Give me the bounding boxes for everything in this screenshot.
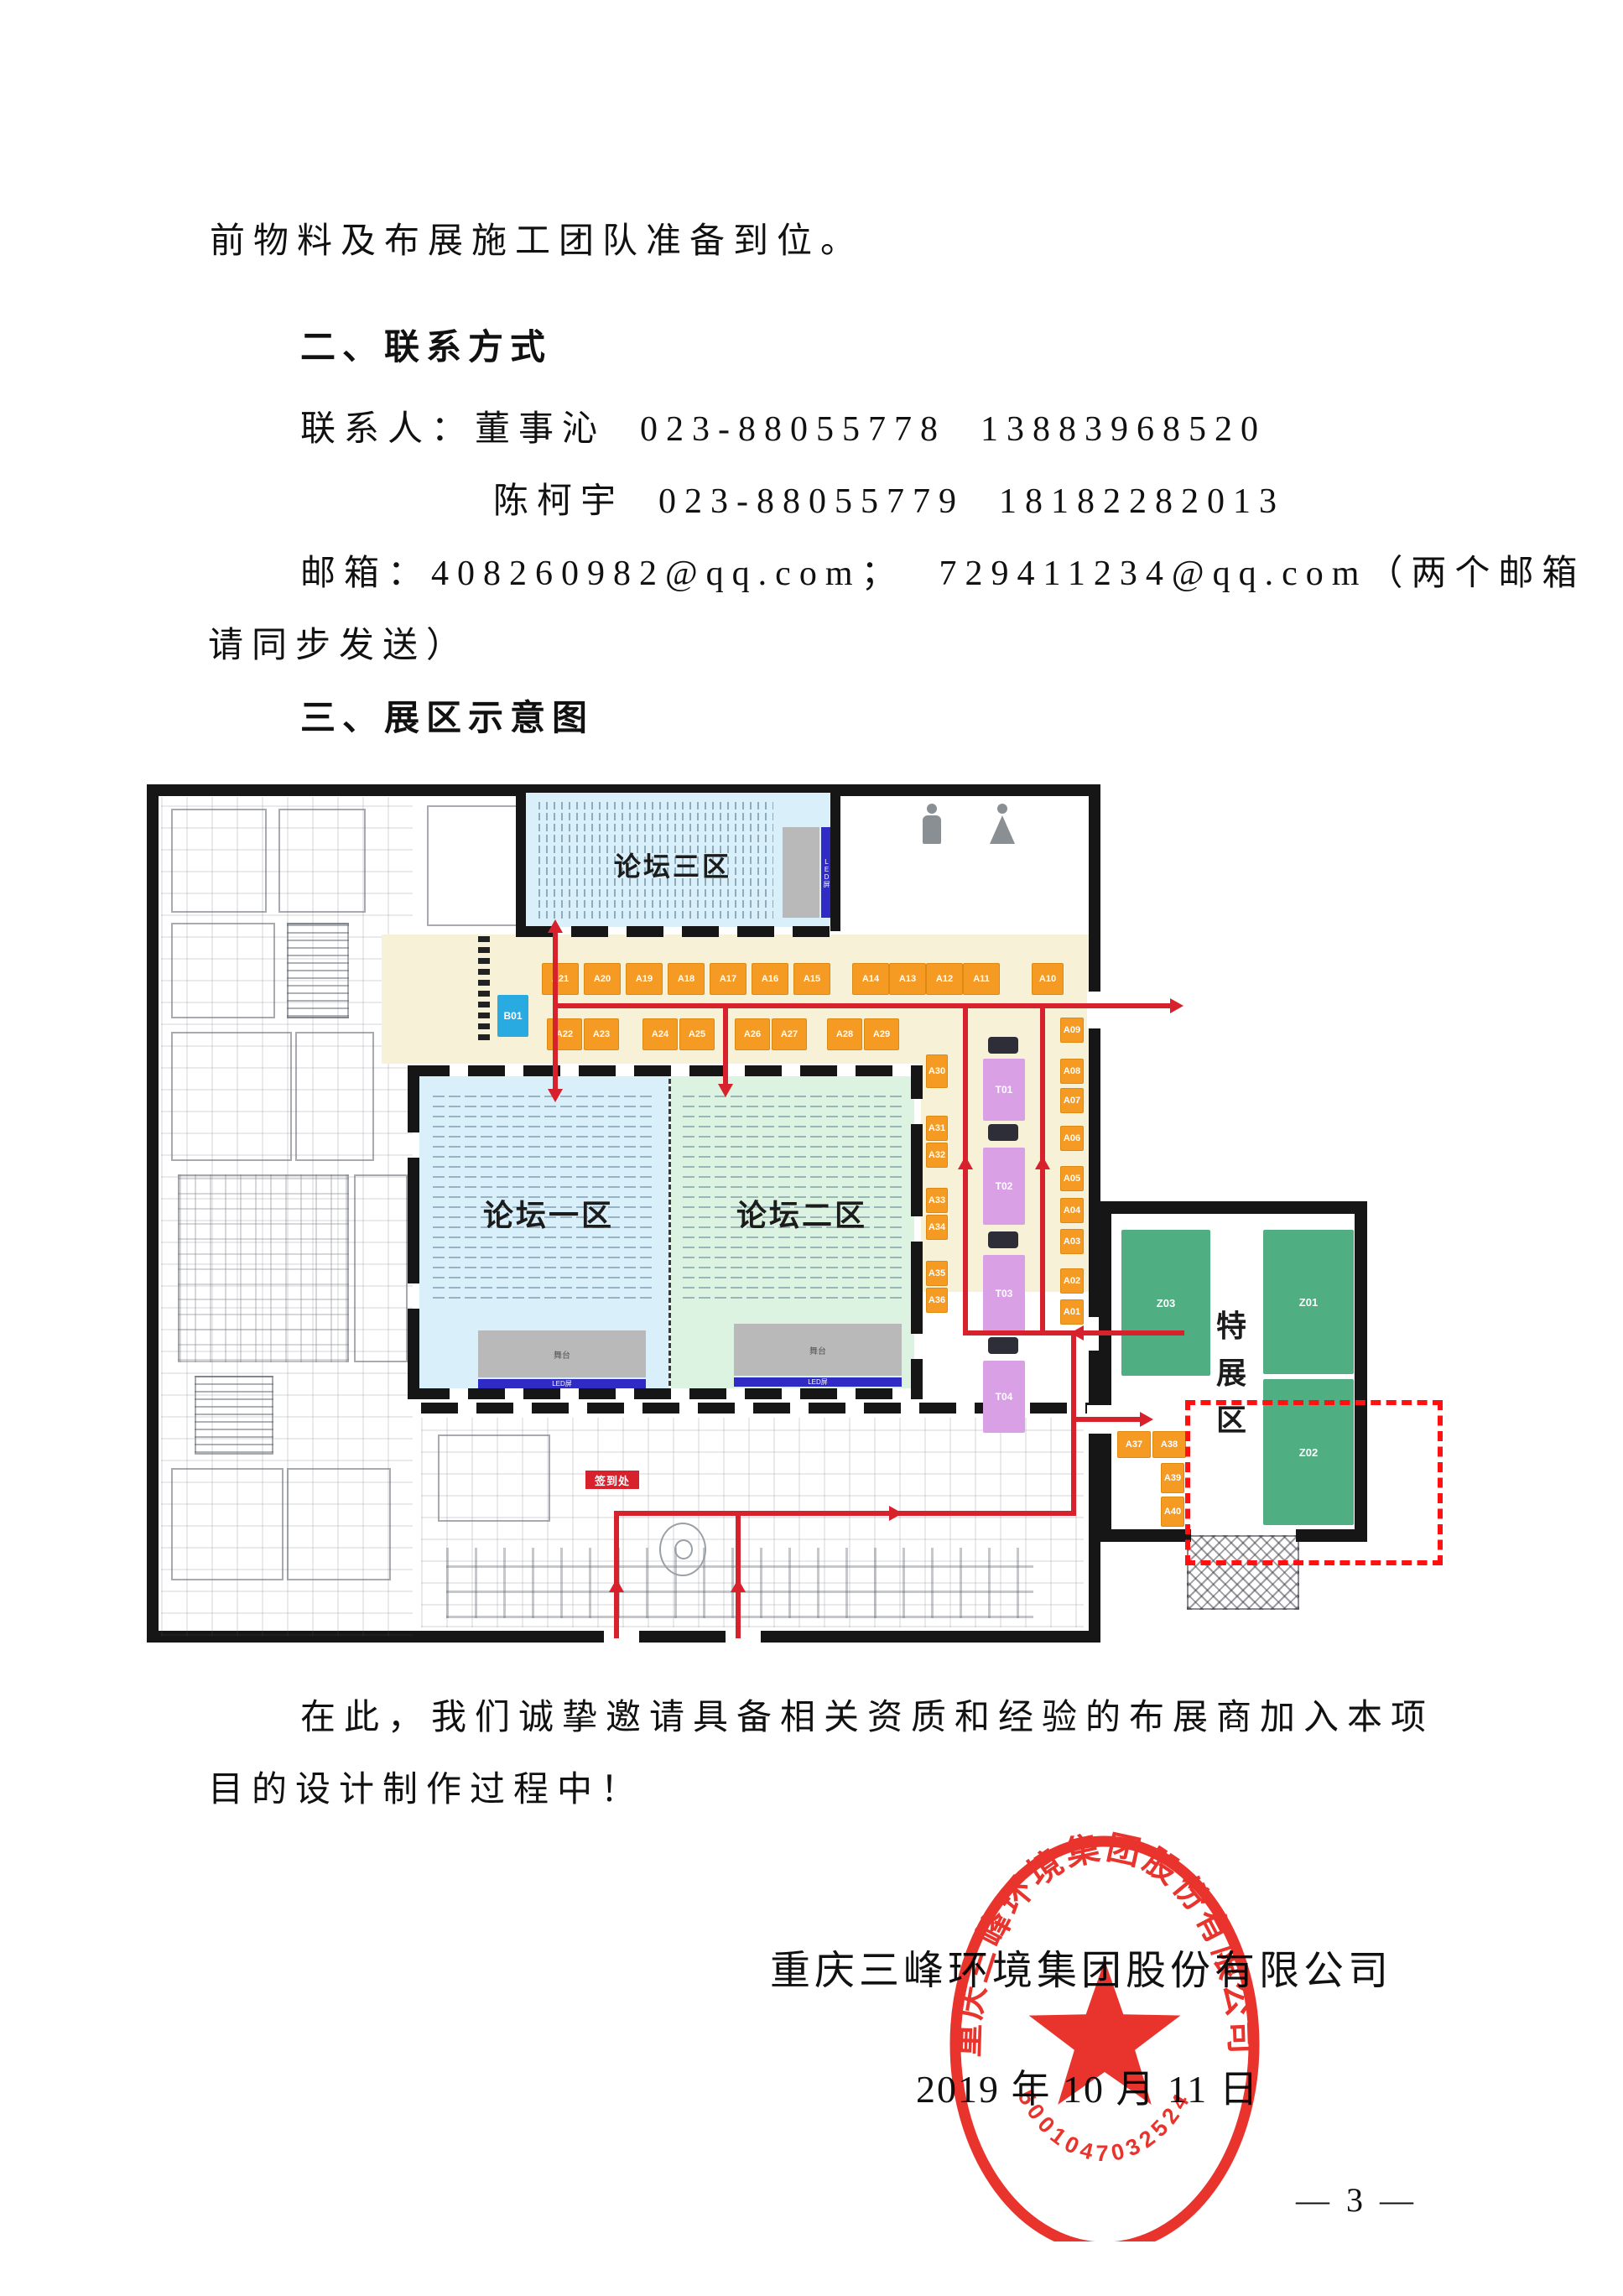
forum-divider <box>668 1079 671 1386</box>
route-arrow-right <box>1170 998 1183 1013</box>
booth-A25: A25 <box>679 1018 715 1050</box>
booth-A30: A30 <box>926 1054 948 1088</box>
booth-A06: A06 <box>1060 1126 1084 1151</box>
booth-A09: A09 <box>1060 1018 1084 1043</box>
route-arrow-up <box>1035 1156 1050 1169</box>
contact-line-2: 陈柯宇 023-88055779 18182282013 <box>493 480 1285 524</box>
booth-A24: A24 <box>642 1018 678 1050</box>
room-outline <box>287 1468 391 1580</box>
booth-A17: A17 <box>710 963 746 995</box>
booth-A03: A03 <box>1060 1229 1084 1254</box>
route-arrow-right <box>1140 1412 1153 1427</box>
booth-A29: A29 <box>864 1018 899 1050</box>
forum-zone1-stage: 舞台 <box>478 1330 646 1377</box>
wall <box>830 787 840 931</box>
booth-A14: A14 <box>852 963 889 995</box>
booth-T02: T02 <box>983 1148 1025 1225</box>
heading-map: 三、展区示意图 <box>300 696 594 741</box>
annex-wall-left <box>1099 1434 1111 1542</box>
booth-A37: A37 <box>1117 1431 1151 1458</box>
booth-A36: A36 <box>926 1288 948 1313</box>
forum-zone1-led: LED屏 <box>478 1379 646 1388</box>
booth-T03: T03 <box>983 1255 1025 1332</box>
booth-A31: A31 <box>926 1116 948 1141</box>
booth-A10: A10 <box>1032 963 1064 995</box>
room-outline <box>171 923 275 1018</box>
booth-A07: A07 <box>1060 1088 1084 1113</box>
paragraph-top: 前物料及布展施工团队准备到位。 <box>210 220 864 264</box>
booth-T04: T04 <box>983 1361 1025 1433</box>
booth-A20: A20 <box>584 963 621 995</box>
wall-doors <box>413 1388 923 1399</box>
company-seal: 重庆三峰环境集团股份有限公司 5001047032524 <box>941 1797 1268 2241</box>
booth-T01: T01 <box>983 1059 1025 1121</box>
booth-A28: A28 <box>827 1018 862 1050</box>
highlight-dashed-rect <box>1185 1400 1443 1565</box>
wall <box>911 1065 923 1099</box>
room-outline <box>171 809 267 913</box>
stairs <box>287 923 349 1018</box>
seal-svg: 重庆三峰环境集团股份有限公司 5001047032524 <box>941 1797 1268 2241</box>
room-outline <box>278 809 366 913</box>
forum-zone2-led: LED屏 <box>734 1377 902 1387</box>
booth-A12: A12 <box>926 963 963 995</box>
female-restroom-icon <box>990 804 1015 844</box>
booth-Z01: Z01 <box>1263 1230 1354 1374</box>
entrance-door <box>726 1629 761 1644</box>
checkin-tag: 签到处 <box>585 1471 639 1489</box>
booth-A16: A16 <box>752 963 788 995</box>
room-outline <box>354 1174 408 1362</box>
sculpture-inner <box>674 1539 693 1559</box>
registration-strip <box>478 936 490 1044</box>
route-line <box>1040 1007 1045 1335</box>
annex-wall-left <box>1099 1201 1111 1405</box>
contact-line-1: 联系人：董事沁 023-88055778 13883968520 <box>300 408 1267 452</box>
wall-doors <box>516 926 840 937</box>
wall <box>408 1309 419 1399</box>
booth-A33: A33 <box>926 1188 948 1213</box>
exhibition-floor-plan: 论坛三区 LED屏 论坛一区 论坛二区 舞台 LED屏 舞台 LED屏 <box>144 780 1443 1657</box>
svg-text:5001047032524: 5001047032524 <box>1013 2085 1197 2166</box>
wall-doors <box>413 1065 923 1076</box>
route-arrow-right <box>889 1506 903 1521</box>
document-page: 前物料及布展施工团队准备到位。 二、联系方式 联系人：董事沁 023-88055… <box>0 0 1623 2296</box>
booth-A23: A23 <box>584 1018 619 1050</box>
room-outline <box>171 1468 284 1580</box>
booth-A39: A39 <box>1161 1463 1184 1493</box>
forum-zone2-stage: 舞台 <box>734 1324 902 1376</box>
booth-Z03: Z03 <box>1121 1230 1210 1376</box>
booth-A26: A26 <box>735 1018 770 1050</box>
route-arrow-up <box>958 1156 973 1169</box>
wall <box>911 1124 923 1216</box>
booth-A34: A34 <box>926 1215 948 1240</box>
male-restroom-icon <box>923 804 941 844</box>
booth-A27: A27 <box>772 1018 807 1050</box>
booth-A21: A21 <box>542 963 579 995</box>
route-arrow-up <box>609 1579 624 1592</box>
table-icon <box>988 1231 1018 1248</box>
booth-A19: A19 <box>626 963 663 995</box>
booth-A13: A13 <box>889 963 926 995</box>
booth-A05: A05 <box>1060 1166 1084 1191</box>
route-line <box>614 1511 619 1638</box>
stairs <box>195 1376 273 1455</box>
booth-A32: A32 <box>926 1143 948 1168</box>
booth-A40: A40 <box>1161 1497 1184 1527</box>
route-arrow-up <box>731 1579 746 1592</box>
heading-contact: 二、联系方式 <box>300 325 552 370</box>
forum-zone3-stage <box>783 827 819 918</box>
seal-number: 5001047032524 <box>1013 2085 1197 2166</box>
room-outline <box>427 805 519 926</box>
route-line <box>736 1511 741 1638</box>
booth-A08: A08 <box>1060 1059 1084 1084</box>
annex-wall-top <box>1099 1201 1367 1214</box>
route-arrow-down <box>718 1084 733 1097</box>
email-line-2: 请同步发送） <box>208 624 470 669</box>
route-line <box>614 1511 1076 1516</box>
booth-A38: A38 <box>1152 1431 1186 1458</box>
booth-B01: B01 <box>497 995 528 1037</box>
table-icon <box>988 1037 1018 1054</box>
wall <box>911 1359 923 1399</box>
seal-star <box>1029 1960 1181 2105</box>
forum-zone3-label: 论坛三区 <box>614 846 731 884</box>
lobby-sculpture <box>659 1523 706 1576</box>
entrance-door <box>604 1629 639 1644</box>
annex-wall-bottom <box>1099 1529 1191 1542</box>
booth-A15: A15 <box>793 963 830 995</box>
invite-line-2: 目的设计制作过程中！ <box>208 1768 644 1813</box>
table-icon <box>988 1337 1018 1354</box>
booth-A02: A02 <box>1060 1268 1084 1294</box>
room-outline <box>438 1434 550 1522</box>
exit-gap <box>1087 992 1102 1028</box>
booth-A01: A01 <box>1060 1299 1084 1325</box>
table-icon <box>988 1124 1018 1141</box>
email-line-1: 邮箱：408260982@qq.com； 729411234@qq.com（两个… <box>300 552 1585 596</box>
forum-zone2-label: 论坛二区 <box>736 1191 867 1235</box>
wall <box>408 1065 419 1132</box>
route-line <box>1071 1335 1076 1513</box>
forum-zone1-label: 论坛一区 <box>483 1191 614 1235</box>
route-arrow-down <box>548 1089 563 1102</box>
route-arrow-up <box>548 919 563 933</box>
route-line <box>553 1003 1170 1008</box>
booth-A35: A35 <box>926 1261 948 1286</box>
room-outline <box>171 1032 292 1161</box>
booth-A04: A04 <box>1060 1198 1084 1223</box>
page-number: — 3 — <box>1296 2179 1413 2221</box>
wall <box>911 1242 923 1334</box>
kitchen-area <box>178 1174 349 1362</box>
booth-A11: A11 <box>963 963 1000 995</box>
wall <box>408 1158 419 1283</box>
special-zone-label-2: 展 <box>1216 1349 1249 1393</box>
room-outline <box>295 1032 374 1161</box>
invite-line-1: 在此，我们诚挚邀请具备相关资质和经验的布展商加入本项 <box>300 1696 1434 1741</box>
route-line <box>1071 1417 1140 1422</box>
route-line <box>553 933 558 1089</box>
route-line <box>723 1007 728 1084</box>
wall <box>516 787 526 931</box>
route-line <box>963 1007 968 1335</box>
special-zone-label-1: 特 <box>1216 1302 1249 1346</box>
booth-A18: A18 <box>668 963 705 995</box>
